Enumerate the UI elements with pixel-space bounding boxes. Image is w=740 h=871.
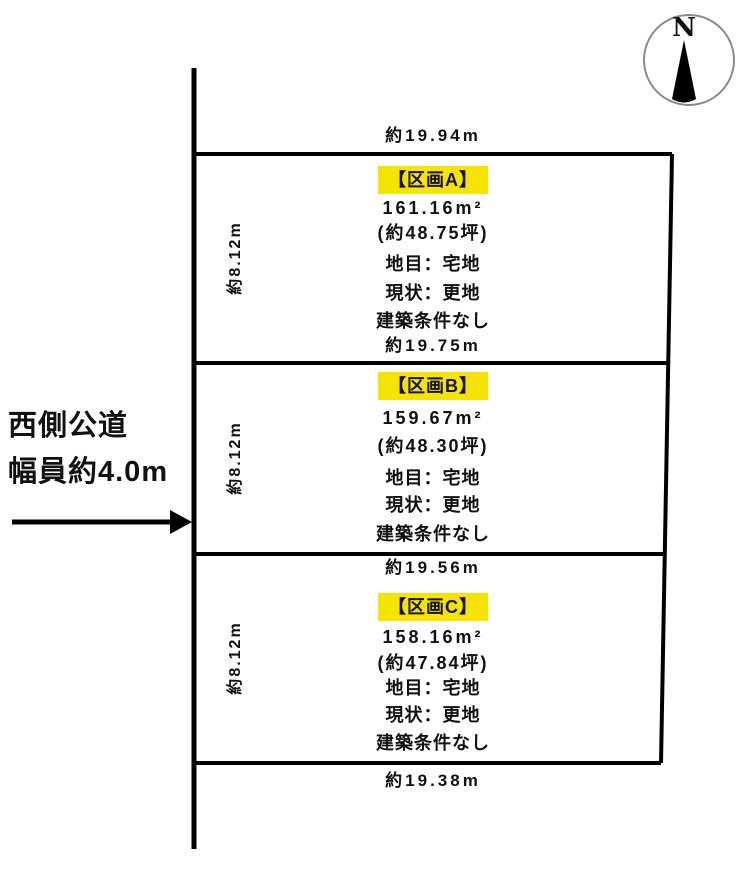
plot-c-area-tsubo: (約47.84坪)	[194, 651, 672, 675]
road-arrow-head	[170, 510, 192, 534]
road-name-label: 西側公道	[8, 408, 193, 444]
plot-c-frontage-label: 約19.38m	[194, 769, 672, 793]
plot-a-current-status: 現状：更地	[194, 281, 672, 305]
frontage-top-label: 約19.94m	[194, 124, 672, 148]
plot-a-land-category: 地目：宅地	[194, 252, 672, 276]
plot-a-title-highlight: 【区画A】	[378, 166, 488, 194]
plot-a-frontage-label: 約19.75m	[194, 334, 672, 358]
plot-b-depth-label: 約8.12m	[226, 393, 246, 523]
plot-b-title: 【区画B】	[194, 372, 672, 400]
road-width-label: 幅員約4.0m	[8, 454, 193, 490]
plot-b-area-tsubo: (約48.30坪)	[194, 434, 672, 458]
plot-a-building-condition: 建築条件なし	[194, 309, 672, 333]
compass-north-label: N	[669, 14, 699, 42]
plot-b-frontage-label: 約19.56m	[194, 556, 672, 580]
plot-a-area-sqm: 161.16m²	[194, 196, 672, 220]
plot-c-building-condition: 建築条件なし	[194, 731, 672, 755]
plot-a-depth-label: 約8.12m	[226, 193, 246, 323]
plot-b-title-highlight: 【区画B】	[378, 372, 488, 400]
plot-c-title-highlight: 【区画C】	[378, 593, 488, 621]
plot-c-area-sqm: 158.16m²	[194, 625, 672, 649]
land-plot-diagram: N 西側公道 幅員約4.0m 約19.94m 【区画A】 161.16m² (約…	[0, 0, 740, 871]
compass-needle	[672, 40, 696, 103]
plot-b-area-sqm: 159.67m²	[194, 406, 672, 430]
plot-b-land-category: 地目：宅地	[194, 466, 672, 490]
plot-a-area-tsubo: (約48.75坪)	[194, 221, 672, 245]
plot-b-building-condition: 建築条件なし	[194, 522, 672, 546]
plot-c-title: 【区画C】	[194, 593, 672, 621]
plot-c-depth-label: 約8.12m	[226, 593, 246, 723]
plot-b-current-status: 現状：更地	[194, 493, 672, 517]
plot-a-title: 【区画A】	[194, 166, 672, 194]
plot-c-land-category: 地目：宅地	[194, 676, 672, 700]
plot-c-current-status: 現状：更地	[194, 703, 672, 727]
